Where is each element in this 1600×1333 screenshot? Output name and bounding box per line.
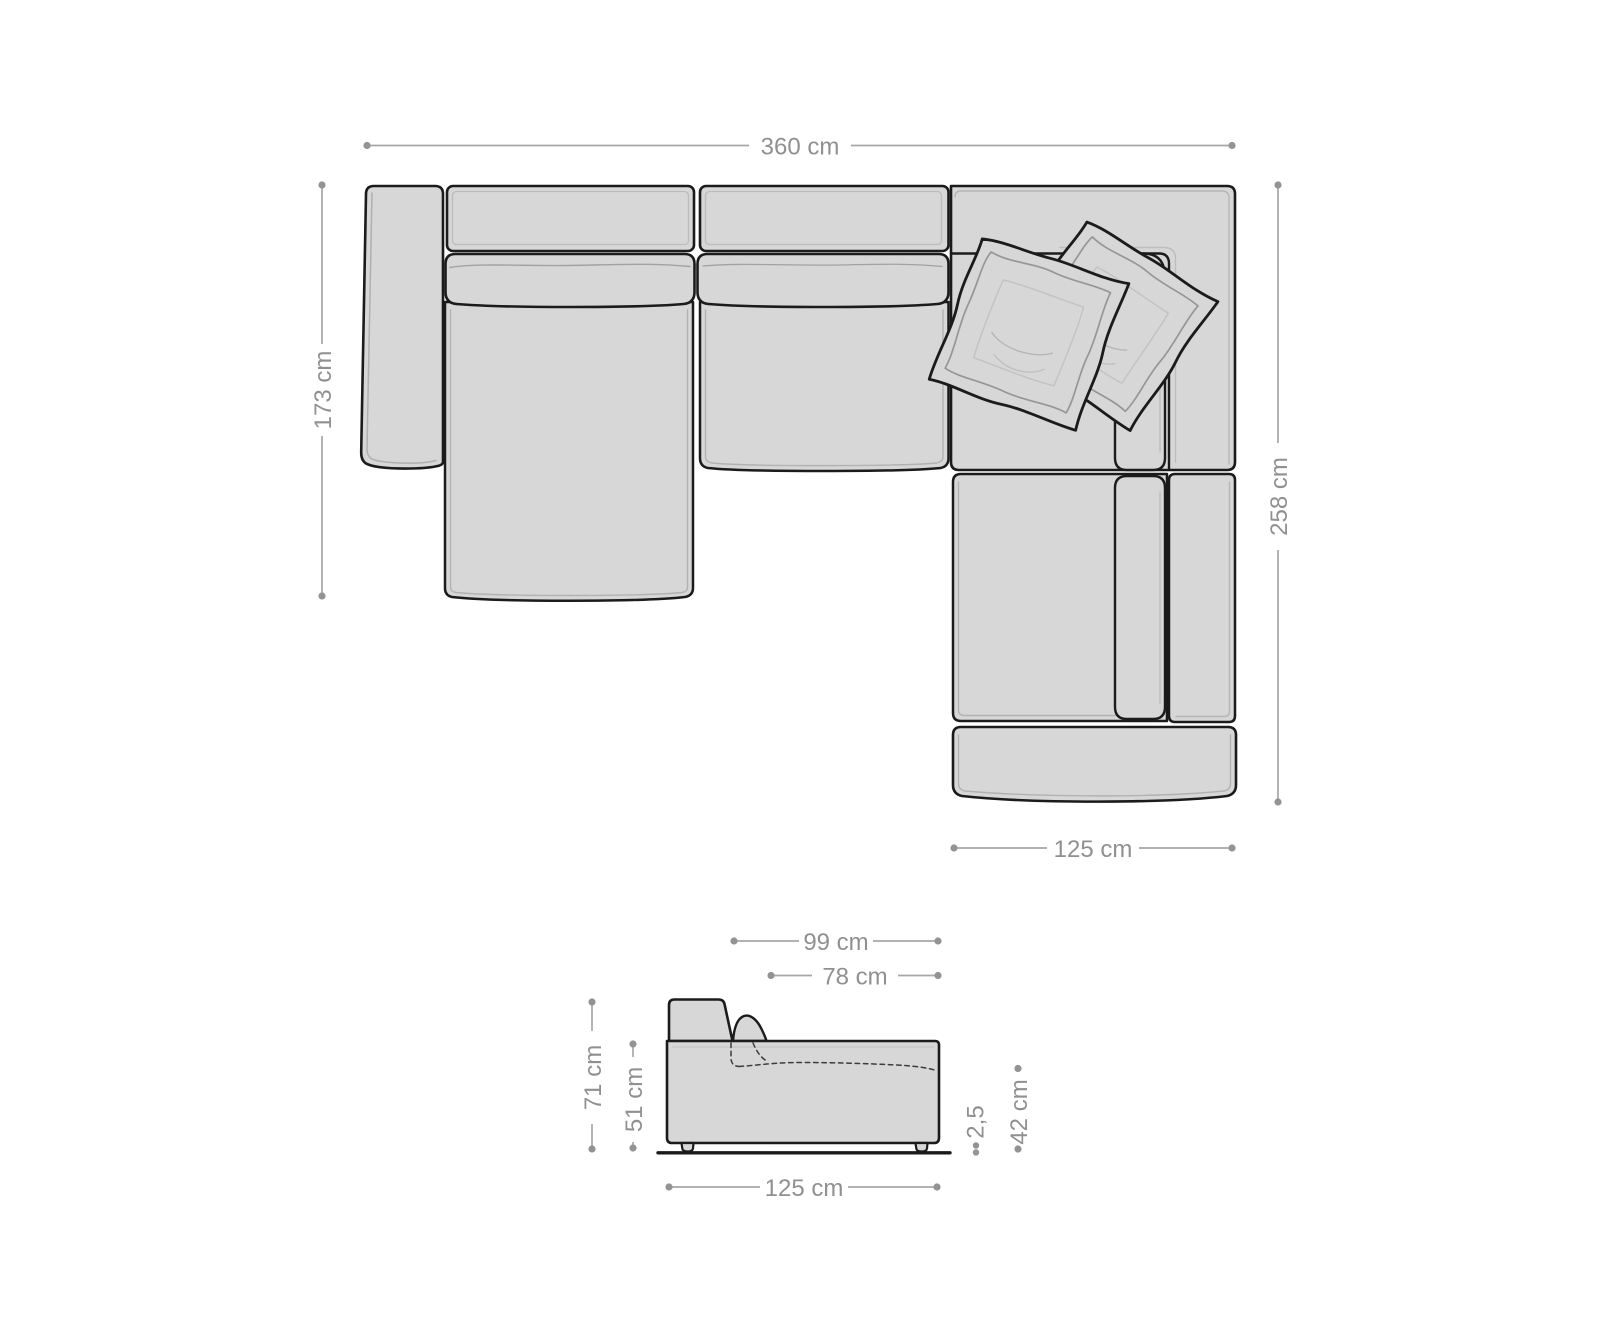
svg-text:99 cm: 99 cm	[803, 929, 868, 956]
svg-text:2,5: 2,5	[963, 1105, 990, 1138]
svg-text:173 cm: 173 cm	[310, 351, 337, 430]
svg-text:125 cm: 125 cm	[1054, 836, 1133, 863]
svg-text:42 cm: 42 cm	[1006, 1079, 1033, 1144]
svg-text:258 cm: 258 cm	[1266, 457, 1293, 536]
svg-text:51 cm: 51 cm	[621, 1067, 648, 1132]
svg-text:71 cm: 71 cm	[580, 1045, 607, 1110]
svg-text:125 cm: 125 cm	[765, 1175, 844, 1202]
svg-text:78 cm: 78 cm	[822, 964, 887, 991]
svg-text:360 cm: 360 cm	[761, 134, 840, 161]
